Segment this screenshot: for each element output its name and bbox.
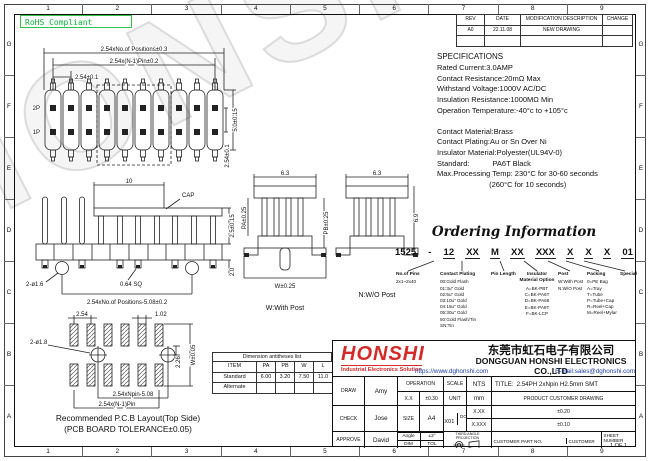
company-website: https://www.dghonshi.com — [415, 368, 488, 375]
dimension-cell — [295, 383, 314, 394]
dim-label: 2.54x(N-1)Pin±0.2 — [110, 59, 159, 65]
ordering-section: Ordering Information 1525-12XXMXXXXXXXX0… — [394, 224, 634, 334]
dimension-header: PB — [276, 362, 295, 373]
title-block: DRAW Amy OPERATION SCALE NTS TITLE: 2.54… — [333, 376, 635, 448]
dim-label: 1.02 — [155, 312, 167, 318]
dim-label: 2.54xNpin-5.08 — [113, 392, 154, 398]
ordering-column: No.of Pins2x1~2x40 — [396, 272, 430, 286]
dimension-cell — [314, 383, 333, 394]
approve-name: David — [364, 431, 397, 448]
ordering-code-segment: 01 — [621, 247, 634, 259]
dimension-cell — [276, 383, 295, 394]
customer-part-label: CUSTOMER PART NO. — [492, 438, 566, 444]
customer-row: CUSTOMER PART NO. CUSTOMER SHEET NUMBER … — [491, 431, 635, 448]
zone-label: 2 — [83, 447, 152, 457]
revision-cell: A0 — [457, 26, 485, 37]
draw-name: Amy — [364, 376, 397, 405]
ordering-code-segment: X — [584, 247, 592, 259]
ordering-column-label: Contact Plating — [440, 272, 488, 278]
dimension-cell: 6.00 — [257, 373, 276, 384]
spec-line: Insulator Material:Polyester(UL94V-0) — [437, 148, 637, 159]
company-logo: HONSHI — [341, 343, 425, 366]
ordering-option: 2x1~2x40 — [396, 279, 430, 285]
dimension-cell: 11.0 — [314, 373, 333, 384]
revision-cell — [457, 36, 485, 47]
scale-label: SCALE — [443, 376, 466, 391]
revision-table: REVDATEMODIFICATION DESCRIPTIONCHANGEA02… — [456, 14, 633, 47]
dim-label: 2.26 — [176, 356, 182, 368]
zone-label: 7 — [429, 447, 498, 457]
ordering-code-segment: - — [427, 247, 432, 259]
tol2-value: ±0.20 — [491, 405, 635, 418]
dimension-header: L — [314, 362, 333, 373]
zone-label: B — [4, 324, 14, 386]
top-view-drawing: 2.54xNo.of Positions±0.3 2.54x(N-1)Pin±0… — [24, 44, 239, 170]
dim-label: 6.3 — [281, 171, 290, 177]
spec-line: (260°C for 10 seconds) — [437, 180, 637, 191]
zone-label: 8 — [499, 447, 568, 457]
zone-band-bottom: 123456789 — [14, 447, 636, 457]
dim-label: PA±0.25 — [242, 206, 248, 229]
approve-label: APPROVE — [333, 431, 364, 448]
rohs-badge: RoHS Compliant — [20, 15, 132, 28]
dim-label: 6.3 — [373, 171, 382, 177]
dim-label: 5.0±0.15 — [233, 108, 239, 132]
dim-label: 10 — [126, 179, 133, 185]
dimension-cell — [257, 383, 276, 394]
zone-label: F — [636, 76, 646, 138]
sheet-number-label: SHEET NUMBER — [602, 432, 636, 443]
third-angle-projection-icon — [453, 440, 483, 448]
spec-line: Withstand Voltage:1000V AC/DC — [437, 84, 637, 95]
zone-label: 8 — [499, 4, 568, 14]
spec-line — [437, 116, 637, 127]
ordering-code-segment: XX — [510, 247, 525, 259]
zone-label: 1 — [14, 447, 83, 457]
dim-label: 2.54 — [76, 312, 88, 318]
spec-line: Rated Current:3.0AMP — [437, 63, 637, 74]
ordering-code-segment: M — [490, 247, 500, 259]
dimension-table-title: Dimension antitheses list — [212, 352, 332, 361]
dim-label: 2.54xNo.of Positions-5.08±0.2 — [87, 300, 168, 306]
zone-label: F — [4, 76, 14, 138]
revision-cell: 22.11.08 — [485, 26, 521, 37]
ordering-columns: No.of Pins2x1~2x40Contact Plating00:Gold… — [394, 272, 634, 334]
doc-part-value: 001 — [458, 419, 466, 425]
part-no-value: 1525-12XXMXXXXXXXX01 — [443, 419, 457, 425]
dim-label: W±0.05 — [191, 344, 197, 365]
dim-label: 2-ø1.6 — [26, 282, 44, 288]
spec-line: Contact Material:Brass — [437, 127, 637, 138]
dim-label: 6.9 — [414, 213, 420, 222]
angle-dim-cell: Angle ±3° DIM TOL — [397, 431, 443, 448]
dimension-cell: 7.50 — [295, 373, 314, 384]
tol3-value: ±0.10 — [491, 418, 635, 431]
company-links: https://www.dghonshi.com E-mail:sales@dg… — [415, 368, 635, 375]
product-row: PRODUCT CUSTOMER DRAWING — [491, 391, 635, 405]
dimension-cell: Standard — [213, 373, 257, 384]
zone-label: 5 — [291, 4, 360, 14]
company-tagline: Industrial Electronics Solution — [341, 365, 422, 373]
projection-label: THIRD ANGLE PROJECTION — [444, 433, 491, 440]
unit-value: mm — [466, 391, 491, 405]
drawing-sheet: HONSHI 123456789 123456789 GFEDCBA GFEDC… — [0, 0, 650, 461]
pcb-caption-line2: (PCB BOARD TOLERANCE±0.05) — [28, 424, 228, 435]
zone-label: B — [636, 324, 646, 386]
revision-cell — [603, 26, 633, 37]
scale-value: NTS — [466, 376, 491, 391]
ordering-column: Contact Plating00:Gold Flash01:3u" Gold0… — [440, 272, 488, 329]
projection-cell: THIRD ANGLE PROJECTION — [443, 431, 491, 448]
ordering-option: W:With Post — [558, 279, 586, 285]
spec-line: Operation Temperature:-40°c to +105°c — [437, 106, 637, 117]
specifications-block: SPECIFICATIONS Rated Current:3.0AMPConta… — [437, 52, 637, 191]
side-view-caption: W:With Post — [266, 305, 304, 312]
zone-label: A — [636, 386, 646, 447]
ordering-code-segment: XX — [465, 247, 480, 259]
ordering-column: Special — [620, 272, 634, 279]
ordering-option: M=Reel+Mylar — [587, 310, 617, 316]
ordering-title: Ordering Information — [394, 224, 634, 240]
front-view-drawing: 10 CAP 2-ø1.6 0.64 SQ 2.54xNo.of Positio… — [24, 172, 239, 307]
ordering-option: N:W/O Post — [558, 286, 586, 292]
pcb-layout-drawing: 2.54 1.02 2-ø1.8 2.26 W±0.05 2.54xNpin-5… — [28, 310, 223, 412]
zone-label: E — [4, 138, 14, 200]
ordering-leader-lines — [394, 260, 634, 272]
zone-label: 3 — [152, 4, 221, 14]
ordering-code-segment: X — [603, 247, 611, 259]
dim-label: 0.64 SQ — [120, 282, 142, 288]
revision-header: DATE — [485, 15, 521, 26]
ordering-column-label: No.of Pins — [396, 272, 430, 278]
zone-label: A — [4, 386, 14, 447]
unit-label: UNIT — [443, 391, 466, 405]
zone-label: 4 — [222, 447, 291, 457]
title-value: 2.54PH 2xNpin H2.5mm SMT — [517, 381, 599, 388]
cap-label: CAP — [182, 193, 194, 199]
ordering-column: Insulator Material OptionA=BK-PBTC=BK-PA… — [518, 272, 556, 317]
zone-band-right: GFEDCBA — [636, 14, 646, 447]
ordering-option: SN:Tin — [440, 323, 488, 329]
tol1-label: X.X — [397, 391, 419, 405]
part-no-row: PART NO. 1525-12XXMXXXXXXXX01 DOC PART 0… — [443, 405, 466, 431]
zone-label: 3 — [152, 447, 221, 457]
revision-cell — [485, 36, 521, 47]
zone-label: 5 — [291, 447, 360, 457]
spec-line: Max.Processing Temp: 230°C for 30-60 sec… — [437, 169, 637, 180]
dim-label: PB±0.25 — [324, 211, 330, 235]
draw-label: DRAW — [333, 376, 364, 405]
sheet-number-value: 1 OF 1 — [602, 443, 636, 448]
tol3-label: X.XXX — [466, 418, 491, 431]
company-email: E-mail:sales@dghonshi.com — [555, 368, 635, 375]
ordering-option: F=BK-LCP — [518, 311, 556, 317]
ordering-column-label: Pin Length — [491, 272, 517, 278]
tol2-label: X.XX — [466, 405, 491, 418]
ordering-code-segment: 1525 — [394, 247, 417, 259]
specifications-title: SPECIFICATIONS — [437, 52, 637, 61]
zone-label: G — [636, 14, 646, 76]
side-view-caption: N:W/O Post — [359, 292, 396, 299]
tol1-value: ±0.30 — [419, 391, 443, 405]
zone-label: D — [4, 200, 14, 262]
zone-label: C — [4, 262, 14, 324]
dimension-cell: 3.20 — [276, 373, 295, 384]
zone-label: C — [636, 262, 646, 324]
ordering-column: Pin Length — [491, 272, 517, 279]
zone-label: 9 — [568, 4, 636, 14]
revision-cell: NEW DRAWING — [521, 26, 603, 37]
spec-line: Insulation Resistance:1000MΩ Min — [437, 95, 637, 106]
pcb-captions: Recommended P.C.B Layout(Top Side) (PCB … — [28, 413, 228, 435]
zone-band-left: GFEDCBA — [4, 14, 14, 447]
check-label: CHECK — [333, 405, 364, 431]
ordering-column: Packing0=PE BagA=TrayT=TubeP=Tube+CapR=R… — [587, 272, 617, 317]
dim-label: 2.54xNo.of Positions±0.3 — [101, 47, 168, 53]
zone-label: G — [4, 14, 14, 76]
operation-label: OPERATION — [397, 376, 443, 391]
zone-band-top: 123456789 — [14, 4, 636, 14]
pcb-caption-line1: Recommended P.C.B Layout(Top Side) — [28, 413, 228, 424]
revision-cell — [603, 36, 633, 47]
ordering-column: PostW:With PostN:W/O Post — [558, 272, 586, 292]
dimension-header: ITEM — [213, 362, 257, 373]
company-block: HONSHI Industrial Electronics Solution 东… — [332, 340, 636, 447]
check-name: Jose — [364, 405, 397, 431]
dimension-header: W — [295, 362, 314, 373]
zone-label: 9 — [568, 447, 636, 457]
ordering-column-label: Insulator Material Option — [518, 272, 556, 285]
dimension-header: PA — [257, 362, 276, 373]
revision-cell — [521, 36, 603, 47]
dim-label: DIM — [398, 440, 420, 448]
tol-label: TOL — [420, 440, 444, 448]
spec-lines: Rated Current:3.0AMPContact Resistance:2… — [437, 63, 637, 191]
zone-label: 1 — [14, 4, 83, 14]
spec-line: Standard: PA6T Black — [437, 159, 637, 170]
dim-label: W±0.25 — [275, 284, 296, 290]
ordering-code: 1525-12XXMXXXXXXXX01 — [394, 247, 634, 259]
size-value: A4 — [419, 405, 443, 431]
spec-line: Contact Resistance:20mΩ Max — [437, 74, 637, 85]
zone-label: 6 — [360, 4, 429, 14]
revision-header: REV — [457, 15, 485, 26]
zone-label: D — [636, 200, 646, 262]
revision-header: CHANGE — [603, 15, 633, 26]
ordering-code-segment: 12 — [443, 247, 456, 259]
ordering-column-label: Special — [620, 272, 634, 278]
zone-label: 7 — [429, 4, 498, 14]
row-label: 1P — [33, 130, 40, 136]
zone-label: 2 — [83, 4, 152, 14]
dimension-table: ITEMPAPBWLStandard6.003.207.5011.0Altern… — [212, 361, 333, 394]
ordering-column-label: Packing — [587, 272, 617, 278]
ordering-code-segment: XXX — [535, 247, 556, 259]
dim-label: 2.0 — [230, 267, 236, 276]
spec-line: Contact Plating:Au or Sn Over Ni — [437, 137, 637, 148]
ordering-column-label: Post — [558, 272, 586, 278]
zone-label: 6 — [360, 447, 429, 457]
dim-label: 2.54x(N-1)Pin — [98, 402, 135, 408]
dim-label: 2.54±0.1 — [225, 144, 231, 168]
dim-label: 2.5±0.15 — [230, 214, 236, 238]
dim-label: 2.54±0.1 — [75, 75, 99, 81]
title-row: TITLE: 2.54PH 2xNpin H2.5mm SMT — [491, 376, 635, 391]
title-label: TITLE: — [495, 381, 514, 388]
size-label: SIZE — [397, 405, 419, 431]
revision-header: MODIFICATION DESCRIPTION — [521, 15, 603, 26]
customer-label: CUSTOMER — [567, 438, 601, 444]
dim-label: 2-ø1.8 — [30, 340, 48, 346]
dimension-cell: Alternate — [213, 383, 257, 394]
ordering-code-segment: X — [566, 247, 574, 259]
zone-label: E — [636, 138, 646, 200]
row-label: 2P — [33, 106, 40, 112]
zone-label: 4 — [222, 4, 291, 14]
